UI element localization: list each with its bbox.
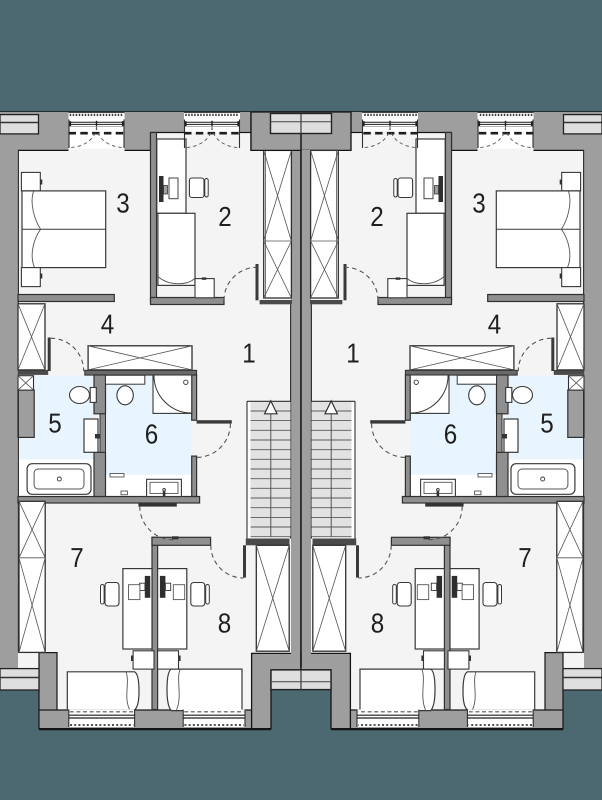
svg-text:8: 8 xyxy=(371,608,384,639)
svg-text:4: 4 xyxy=(488,309,501,340)
svg-text:7: 7 xyxy=(518,542,531,573)
svg-text:3: 3 xyxy=(116,188,129,219)
svg-text:5: 5 xyxy=(48,408,61,439)
svg-text:4: 4 xyxy=(101,309,114,340)
svg-text:1: 1 xyxy=(346,338,359,369)
svg-text:3: 3 xyxy=(472,188,485,219)
svg-text:1: 1 xyxy=(242,338,255,369)
svg-text:7: 7 xyxy=(70,542,83,573)
svg-text:8: 8 xyxy=(218,608,231,639)
svg-text:2: 2 xyxy=(370,201,383,232)
svg-text:5: 5 xyxy=(540,408,553,439)
svg-text:6: 6 xyxy=(444,419,457,450)
svg-text:2: 2 xyxy=(218,201,231,232)
svg-text:6: 6 xyxy=(145,419,158,450)
